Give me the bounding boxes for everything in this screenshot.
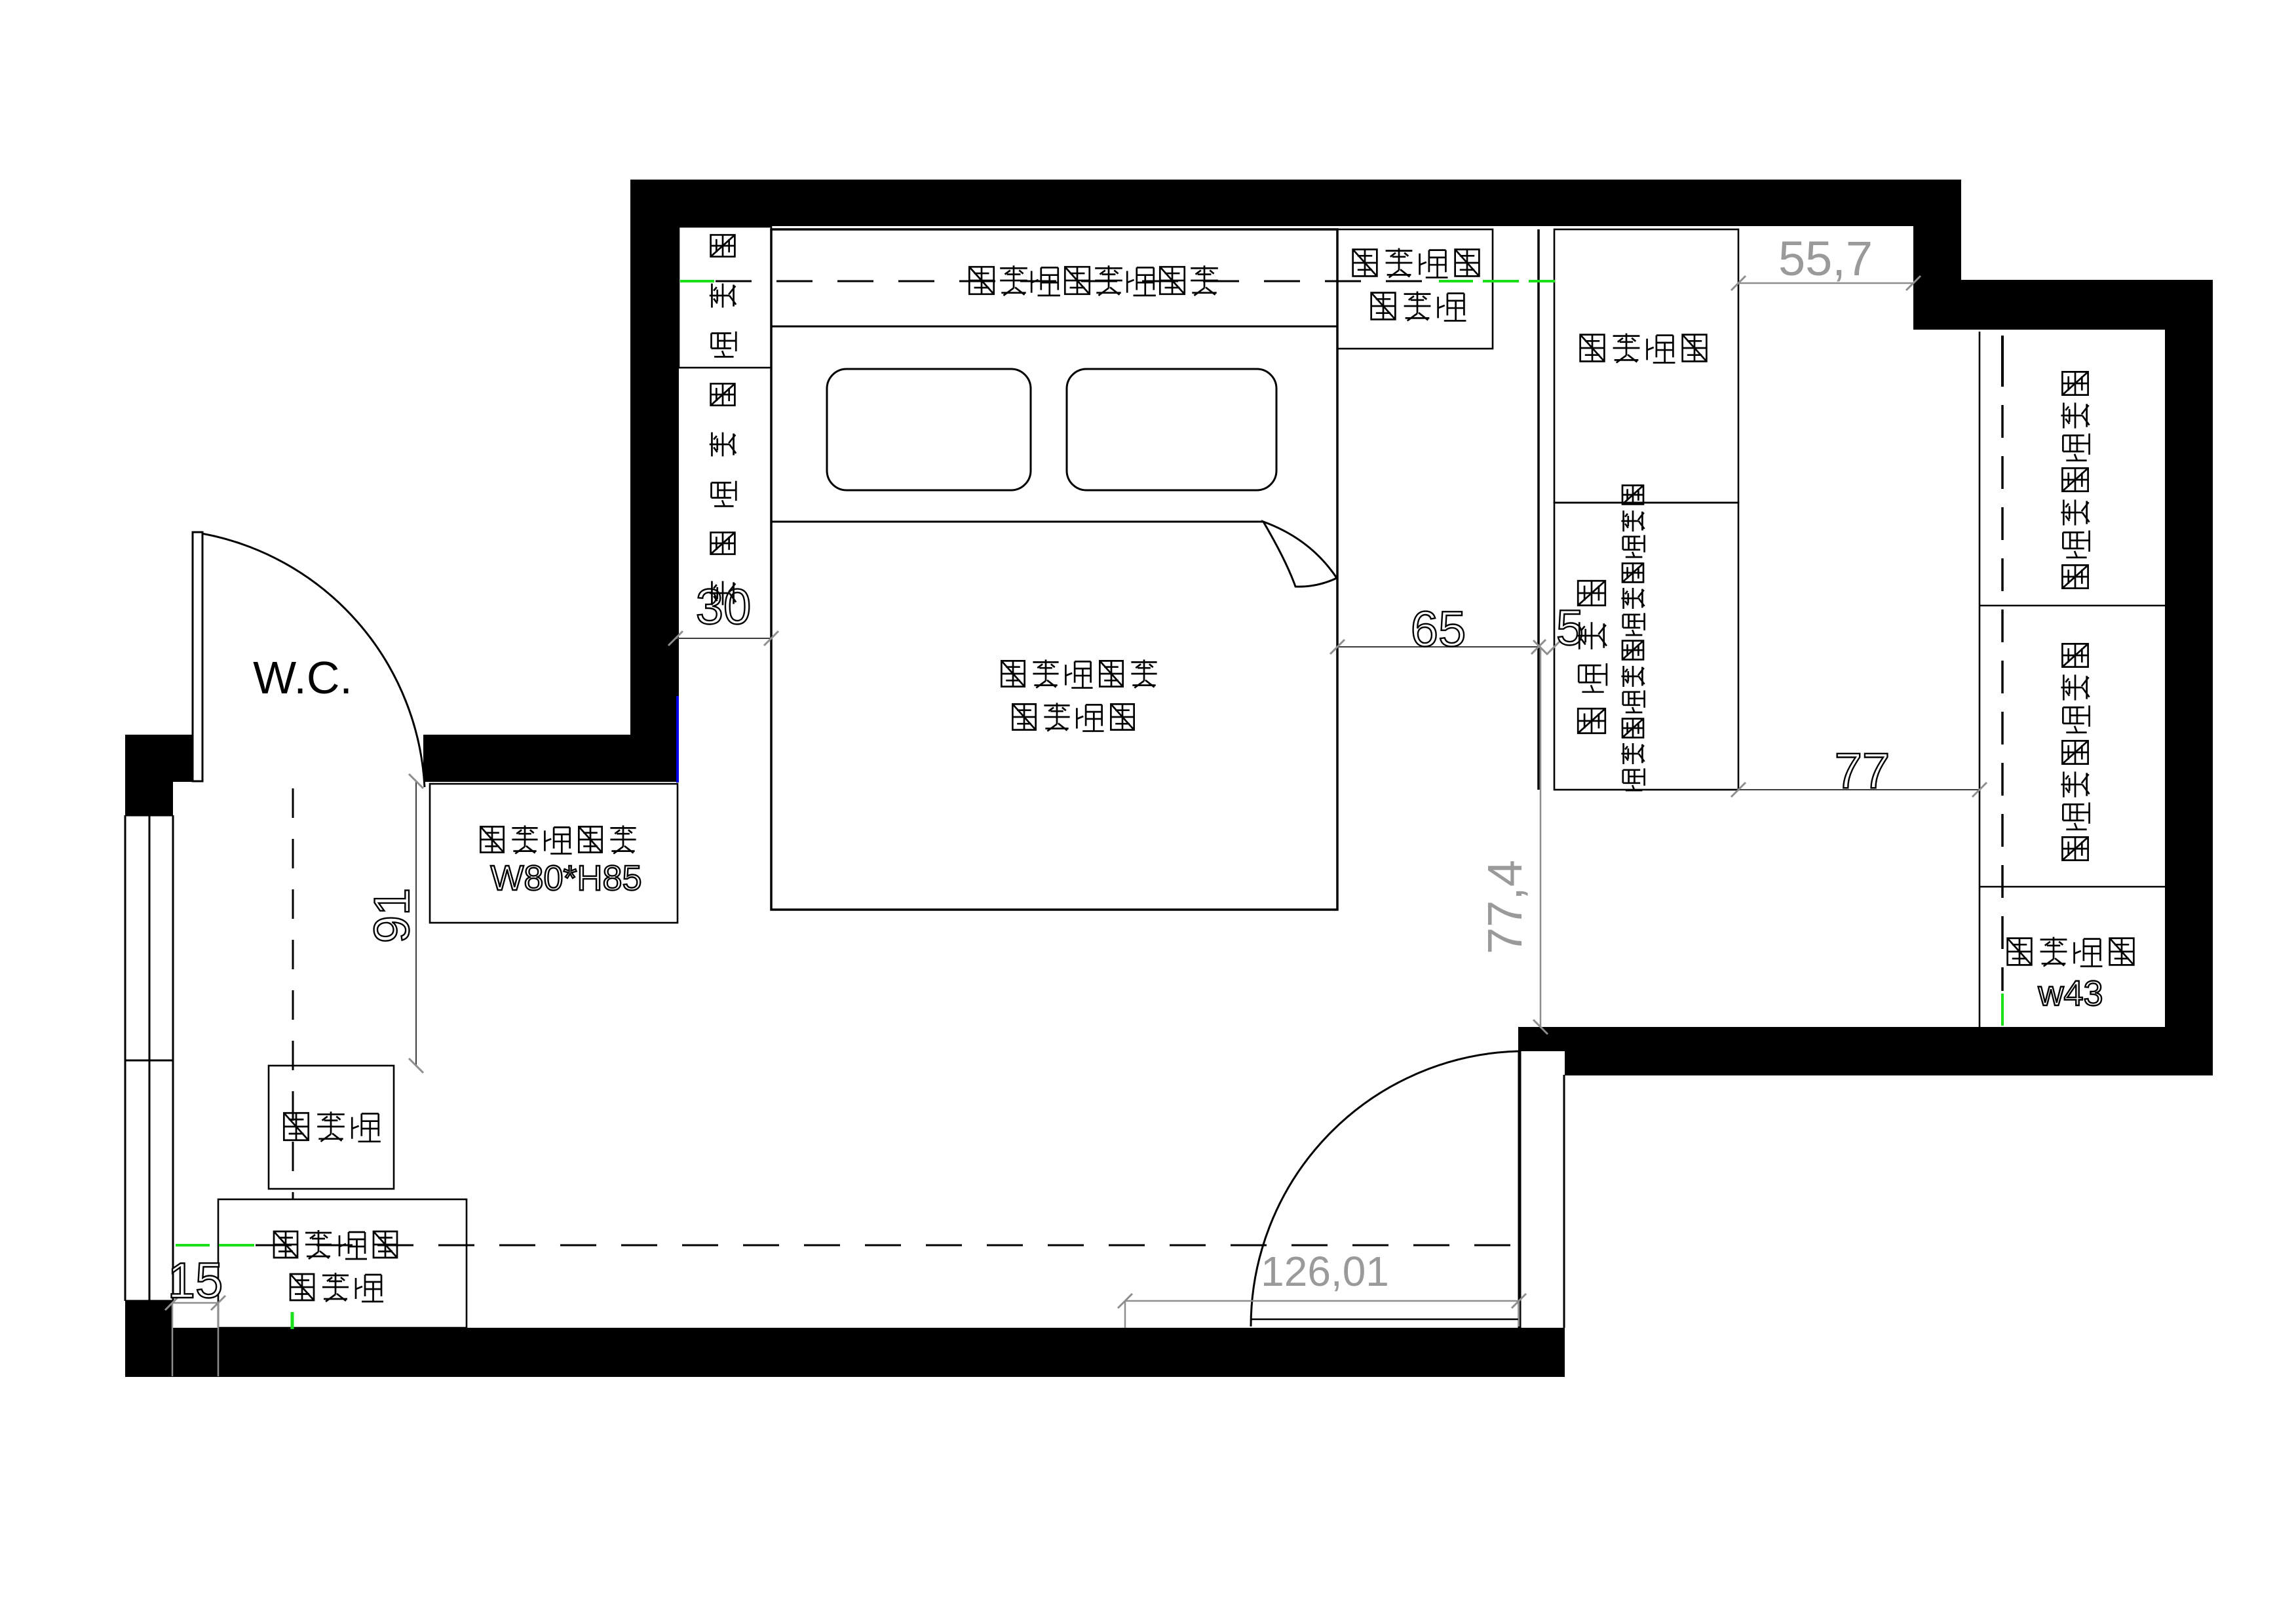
svg-text:55,7: 55,7 [1778,231,1873,286]
svg-text:126,01: 126,01 [1261,1248,1389,1295]
svg-text:77,4: 77,4 [1478,860,1532,954]
svg-text:15: 15 [168,1253,223,1309]
svg-text:W.C.: W.C. [253,652,353,703]
svg-text:w43: w43 [2037,974,2103,1013]
svg-text:W80*H85: W80*H85 [490,859,641,898]
svg-text:91: 91 [364,888,420,944]
svg-text:77: 77 [1835,743,1890,799]
svg-text:65: 65 [1411,602,1466,657]
